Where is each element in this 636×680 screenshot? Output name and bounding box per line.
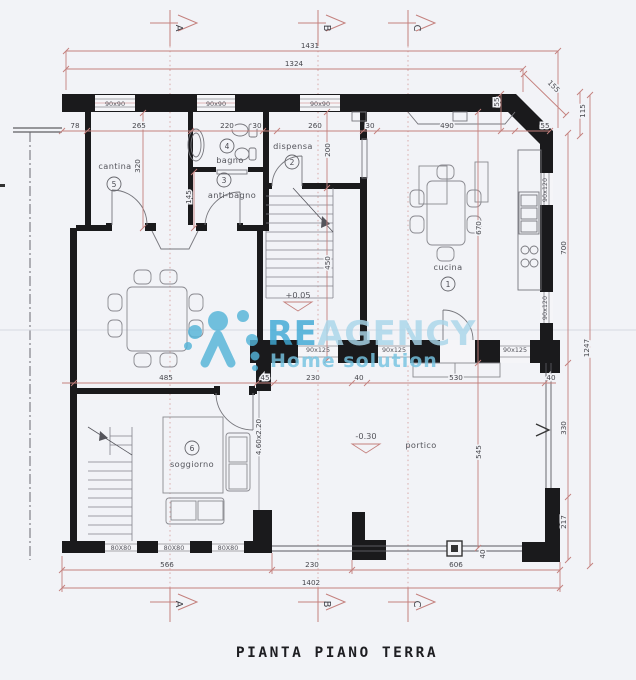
- room-cantina: cantina 5: [98, 161, 131, 191]
- svg-text:soggiorno: soggiorno: [170, 459, 214, 469]
- dim-200: 200: [323, 143, 332, 157]
- dim-45: 45: [260, 373, 269, 382]
- dim-320: 320: [133, 159, 142, 173]
- dim-485: 485: [159, 373, 173, 382]
- room-dispensa: dispensa 2: [273, 141, 313, 169]
- level-portico: -0.30: [355, 431, 376, 441]
- floor-plan-canvas: 1431 1324 78 265 220 30 260 30 490 55 55…: [0, 0, 636, 680]
- window-label-90x90-3: 90x90: [310, 100, 330, 108]
- section-marker-c-bottom: C: [411, 601, 422, 608]
- kitchen-table: [427, 181, 465, 245]
- window-label-90x125-3: 90x125: [503, 346, 527, 354]
- cooktop: [521, 246, 538, 267]
- dispensa-south-wall: [302, 183, 363, 189]
- dim-30: 30: [252, 121, 262, 130]
- svg-text:anti-bagno: anti-bagno: [208, 190, 256, 200]
- window-label-90x120-1: 90x120: [541, 178, 549, 202]
- dim-55a: 55: [492, 97, 501, 106]
- level-ground: +0.05: [285, 290, 310, 300]
- furniture-soggiorno: [163, 417, 250, 524]
- dim-1324: 1324: [285, 59, 304, 68]
- soggiorno-divider-wall: [76, 388, 216, 394]
- dim-460x220: 4.60x2.20: [254, 418, 263, 455]
- dim-1402: 1402: [302, 578, 320, 587]
- svg-text:cantina: cantina: [98, 161, 131, 171]
- dim-145: 145: [184, 190, 193, 204]
- section-marker-b-bottom: B: [321, 601, 332, 608]
- window-label-90x120-2: 90x120: [541, 296, 549, 320]
- svg-text:bagno: bagno: [216, 155, 244, 165]
- room-cucina: cucina 1: [433, 262, 462, 291]
- dim-230a: 230: [306, 373, 320, 382]
- room-bagno: 4 bagno: [216, 139, 244, 165]
- dim-530: 530: [449, 373, 463, 382]
- svg-text:3: 3: [222, 176, 227, 185]
- dining-east-wall: [257, 231, 263, 391]
- window-label-90x90-1: 90x90: [105, 100, 125, 108]
- plan-title: PIANTA PIANO TERRA: [236, 645, 438, 661]
- section-marker-a-top: A: [173, 25, 184, 32]
- section-marker-c-top: C: [411, 25, 422, 32]
- dim-450: 450: [323, 256, 332, 270]
- dim-700: 700: [559, 241, 568, 255]
- svg-text:6: 6: [190, 444, 195, 453]
- watermark-tagline: Home solution: [270, 350, 438, 372]
- dim-1431: 1431: [301, 41, 319, 50]
- level-triangle-icon: [284, 302, 312, 311]
- stairs-down-arrow-icon: [99, 431, 108, 441]
- dim-606: 606: [449, 560, 463, 569]
- wall-niches: [352, 112, 515, 124]
- floor-plan-drawing: 1431 1324 78 265 220 30 260 30 490 55 55…: [0, 0, 636, 680]
- dim-78: 78: [70, 121, 80, 130]
- dining-table: [127, 287, 187, 351]
- entrance-splay: [152, 231, 198, 249]
- dispensa-door: [272, 156, 302, 186]
- east-wall: [540, 131, 553, 363]
- dim-115: 115: [578, 104, 587, 118]
- dim-155: 155: [546, 78, 562, 94]
- svg-text:dispensa: dispensa: [273, 141, 313, 151]
- dim-40b: 40: [546, 373, 556, 382]
- south-wall-soggiorno: [62, 541, 105, 553]
- window-label-80x80-2: 80X80: [164, 544, 185, 552]
- entry-arrow-icon: [536, 424, 549, 436]
- svg-text:1: 1: [446, 280, 451, 289]
- furniture-kitchen: [410, 162, 488, 261]
- stairs-soggiorno: [88, 427, 132, 541]
- svg-text:2: 2: [290, 158, 295, 167]
- dim-260: 260: [308, 121, 322, 130]
- room-antibagno: 3 anti-bagno: [208, 173, 256, 200]
- svg-text:4: 4: [225, 142, 230, 151]
- dim-670: 670: [474, 221, 483, 235]
- watermark: REAGENCY Home solution: [184, 310, 476, 372]
- dim-55b: 55: [540, 121, 549, 130]
- portico-se-pillar: [522, 488, 560, 562]
- cantina-door: [112, 190, 147, 225]
- dim-545: 545: [474, 445, 483, 459]
- dim-265: 265: [132, 121, 146, 130]
- soggiorno-door: [216, 393, 253, 430]
- dim-1247: 1247: [582, 339, 591, 357]
- scan-edge-mark: [0, 184, 5, 187]
- section-marker-b-top: B: [321, 25, 332, 32]
- kitchen-counter: [518, 150, 541, 290]
- dim-330: 330: [559, 421, 568, 435]
- dim-230b: 230: [305, 560, 319, 569]
- kitchen-radiator: [475, 162, 488, 202]
- window-label-80x80-3: 80X80: [218, 544, 239, 552]
- watermark-logo-icon: [184, 310, 260, 371]
- furniture-dining: [108, 270, 203, 367]
- west-wall: [70, 228, 77, 548]
- room-portico: portico: [405, 440, 436, 450]
- kitchen-appliances: [518, 150, 541, 290]
- watermark-brand: REAGENCY: [267, 314, 476, 354]
- dim-40a: 40: [354, 373, 364, 382]
- dim-490: 490: [440, 121, 454, 130]
- window-label-90x90-2: 90x90: [206, 100, 226, 108]
- room-soggiorno: 6 soggiorno: [170, 441, 214, 469]
- section-marker-a-bottom: A: [173, 601, 184, 608]
- dim-566: 566: [160, 560, 174, 569]
- dim-217: 217: [559, 515, 568, 529]
- stairs-up-arrow-icon: [321, 216, 330, 228]
- dim-30b: 30: [365, 121, 375, 130]
- svg-text:5: 5: [112, 180, 117, 189]
- cucina-sliding-door: [362, 139, 367, 178]
- fridge: [519, 192, 539, 234]
- portico-sw-pillar: [352, 512, 386, 560]
- stairs-main: [266, 188, 333, 298]
- window-label-80x80-1: 80X80: [111, 544, 132, 552]
- svg-text:cucina: cucina: [433, 262, 462, 272]
- level-triangle-icon: [352, 444, 380, 453]
- dim-220: 220: [220, 121, 234, 130]
- dim-40c: 40: [478, 549, 487, 559]
- toilet: [232, 124, 248, 136]
- kitchen-cupboard: [419, 166, 447, 204]
- portico-edges: [259, 363, 551, 556]
